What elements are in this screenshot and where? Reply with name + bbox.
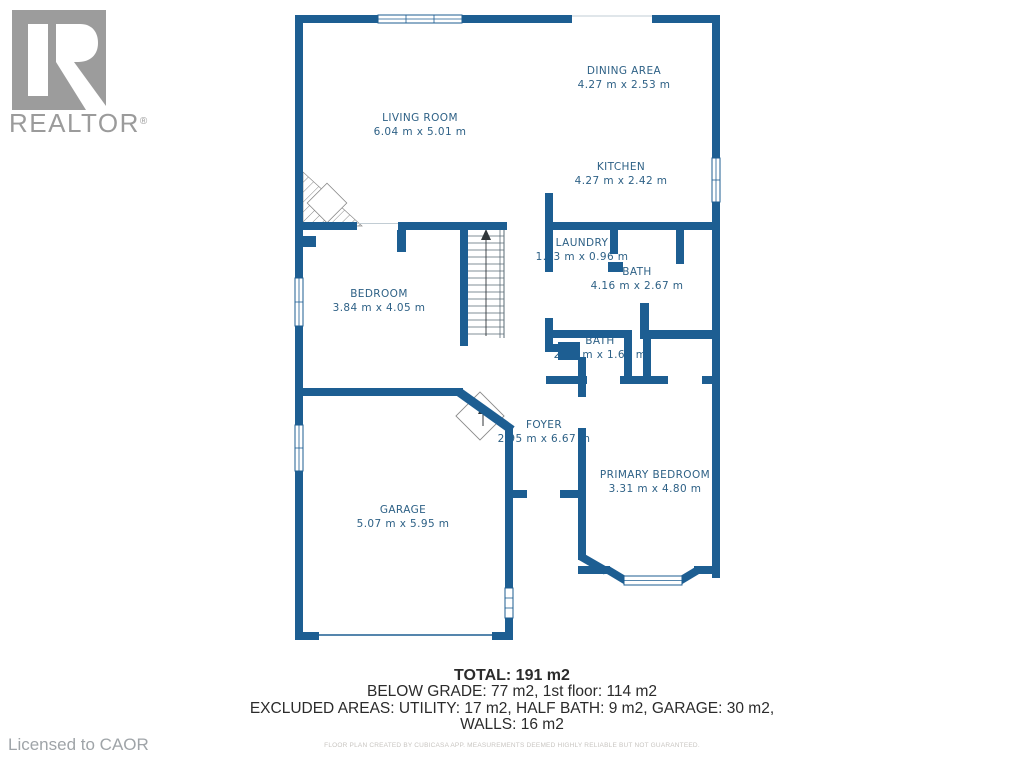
window-bedroom-left — [295, 278, 303, 326]
disclaimer-text: FLOOR PLAN CREATED BY CUBICASA APP. MEAS… — [0, 742, 1024, 749]
room-dims-living-room: 6.04 m x 5.01 m — [374, 126, 467, 138]
excluded-areas-text: EXCLUDED AREAS: UTILITY: 17 m2, HALF BAT… — [0, 701, 1024, 718]
staircase — [468, 229, 504, 338]
room-dims-primary-bedroom: 3.31 m x 4.80 m — [609, 483, 702, 495]
room-labels: LIVING ROOM 6.04 m x 5.01 m DINING AREA … — [333, 65, 710, 530]
room-label-living-room: LIVING ROOM — [382, 112, 458, 124]
room-dims-kitchen: 4.27 m x 2.42 m — [575, 175, 668, 187]
room-label-laundry: LAUNDRY — [556, 237, 609, 249]
room-label-foyer: FOYER — [526, 419, 562, 431]
room-label-bedroom: BEDROOM — [350, 288, 408, 300]
window-garage-left — [295, 425, 303, 471]
below-grade-text: BELOW GRADE: 77 m2, 1st floor: 114 m2 — [0, 684, 1024, 701]
floor-plan-page: REALTOR® Licensed to CAOR — [0, 0, 1024, 768]
room-label-kitchen: KITCHEN — [597, 161, 645, 173]
room-dims-garage: 5.07 m x 5.95 m — [357, 518, 450, 530]
room-dims-dining-area: 4.27 m x 2.53 m — [578, 79, 671, 91]
walls-area-text: WALLS: 16 m2 — [0, 717, 1024, 734]
room-label-bath: BATH — [622, 266, 651, 278]
opening-top-wall — [572, 14, 652, 23]
room-label-garage: GARAGE — [380, 504, 426, 516]
room-dims-bedroom: 3.84 m x 4.05 m — [333, 302, 426, 314]
stair-void-hatch — [303, 172, 362, 226]
room-label-primary-bedroom: PRIMARY BEDROOM — [600, 469, 710, 481]
walls — [295, 15, 720, 640]
area-summary: TOTAL: 191 m2 BELOW GRADE: 77 m2, 1st fl… — [0, 667, 1024, 749]
room-label-dining-area: DINING AREA — [587, 65, 662, 77]
garage-side-door — [505, 588, 513, 618]
room-dims-bath: 4.16 m x 2.67 m — [591, 280, 684, 292]
window-living-room-top — [378, 15, 462, 23]
stair-up-arrow-icon — [481, 229, 491, 240]
floor-plan-canvas: LIVING ROOM 6.04 m x 5.01 m DINING AREA … — [0, 0, 1024, 768]
bay-window-primary-bedroom — [624, 576, 682, 585]
total-area-text: TOTAL: 191 m2 — [0, 667, 1024, 684]
window-kitchen-right — [712, 158, 720, 202]
